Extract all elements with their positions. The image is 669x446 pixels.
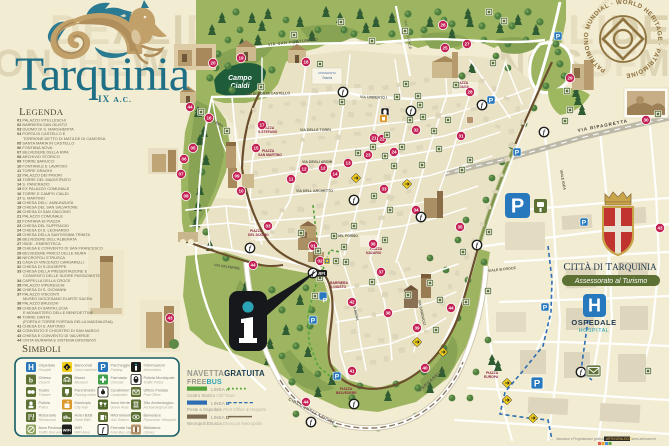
svg-text:Musei: Musei <box>75 375 86 380</box>
svg-text:Polizia Municipale: Polizia Municipale <box>144 375 175 380</box>
svg-text:WiFi: WiFi <box>63 428 71 433</box>
svg-text:44: 44 <box>448 306 454 311</box>
svg-text:20: 20 <box>210 61 216 66</box>
svg-text:37: 37 <box>378 270 384 275</box>
svg-text:Carabinieri: Carabinieri <box>111 393 128 397</box>
svg-text:P: P <box>100 363 106 372</box>
svg-text:05: 05 <box>190 146 196 151</box>
svg-text:S.GIUSTO: S.GIUSTO <box>330 285 347 289</box>
svg-text:35: 35 <box>457 225 463 230</box>
svg-text:Biblioteca: Biblioteca <box>144 425 162 430</box>
svg-text:34: 34 <box>413 208 419 213</box>
svg-text:Campo: Campo <box>228 75 252 82</box>
svg-text:Archaeological site: Archaeological site <box>143 406 173 410</box>
svg-text:OSPEDALE: OSPEDALE <box>571 318 616 327</box>
svg-text:16: 16 <box>206 116 212 121</box>
svg-text:H: H <box>28 363 34 372</box>
svg-text:Parking: Parking <box>111 368 123 372</box>
svg-text:40: 40 <box>422 366 428 371</box>
svg-text:15: 15 <box>253 146 259 151</box>
svg-text:SAN MARTINO: SAN MARTINO <box>258 153 282 157</box>
svg-text:Museum: Museum <box>75 381 89 385</box>
svg-text:HOSPITAL: HOSPITAL <box>579 328 610 334</box>
svg-text:12: 12 <box>301 167 307 172</box>
svg-text:Belvedere: Belvedere <box>144 413 162 418</box>
svg-text:H: H <box>588 296 601 316</box>
svg-text:42: 42 <box>349 300 355 305</box>
svg-text:Traffic Police: Traffic Police <box>144 381 164 385</box>
svg-text:31: 31 <box>458 134 464 139</box>
svg-text:City Hall: City Hall <box>75 406 88 410</box>
svg-text:Post Office: Post Office <box>144 393 161 397</box>
svg-text:33: 33 <box>381 187 387 192</box>
svg-text:Centro Storico Old Town: Centro Storico Old Town <box>187 393 235 398</box>
svg-text:Tuscia: Tuscia <box>322 76 332 80</box>
svg-text:NAZARIO: NAZARIO <box>366 251 382 255</box>
svg-text:CITTÀ DI TARQUINIA: CITTÀ DI TARQUINIA <box>563 261 657 273</box>
svg-text:44 CINTA MURARIA E SISTEMA DIF: 44 CINTA MURARIA E SISTEMA DIFENSIVO <box>17 337 96 342</box>
svg-text:Ufficio Postale: Ufficio Postale <box>144 388 169 393</box>
svg-text:24: 24 <box>391 150 397 155</box>
svg-text:LEGENDA: LEGENDA <box>19 106 64 118</box>
svg-text:Free-Bus stop: Free-Bus stop <box>111 431 133 435</box>
svg-text:EUROPA: EUROPA <box>484 375 499 379</box>
svg-text:Theatre: Theatre <box>39 393 51 397</box>
svg-text:43: 43 <box>167 316 173 321</box>
svg-text:14: 14 <box>332 172 338 177</box>
svg-text:03: 03 <box>265 224 271 229</box>
svg-text:18: 18 <box>303 60 309 65</box>
svg-text:P: P <box>335 373 340 380</box>
svg-text:IX A.C.: IX A.C. <box>98 94 132 104</box>
svg-text:44: 44 <box>303 400 309 405</box>
svg-text:43: 43 <box>657 226 663 231</box>
svg-text:10: 10 <box>238 189 244 194</box>
svg-text:P: P <box>582 219 587 226</box>
svg-text:41: 41 <box>349 369 355 374</box>
svg-text:Municipio: Municipio <box>75 400 91 405</box>
svg-text:VIA DELLE TORRI: VIA DELLE TORRI <box>300 128 331 132</box>
svg-text:08: 08 <box>183 194 189 199</box>
svg-text:Parcheggio: Parcheggio <box>111 363 131 368</box>
svg-text:12: 12 <box>320 166 326 171</box>
svg-text:BELVEDERE: BELVEDERE <box>336 391 357 395</box>
svg-text:30: 30 <box>643 118 649 123</box>
svg-text:27: 27 <box>464 42 470 47</box>
svg-text:VIA DI PORTA CASTELLO: VIA DI PORTA CASTELLO <box>246 91 290 96</box>
svg-text:Church: Church <box>39 381 50 385</box>
svg-text:Sito Archeologico: Sito Archeologico <box>144 400 174 405</box>
svg-text:FREEBUS: FREEBUS <box>187 379 222 386</box>
svg-text:38: 38 <box>385 311 391 316</box>
svg-text:36: 36 <box>370 242 376 247</box>
svg-text:Carabinieri: Carabinieri <box>111 388 130 393</box>
svg-text:Hotel B&B: Hotel B&B <box>75 413 93 418</box>
svg-text:WiFi: WiFi <box>75 425 83 430</box>
svg-text:VIA DELL ARCHETTO: VIA DELL ARCHETTO <box>296 189 333 193</box>
svg-text:Ospedale: Ospedale <box>39 363 56 368</box>
svg-text:UNIVERSITA: UNIVERSITA <box>318 71 336 75</box>
svg-text:Chiesa: Chiesa <box>39 375 52 380</box>
svg-text:11: 11 <box>289 177 294 182</box>
svg-text:39: 39 <box>414 326 420 331</box>
svg-text:Cash machine: Cash machine <box>75 368 97 372</box>
svg-text:Hospital: Hospital <box>39 368 52 372</box>
svg-text:SIMBOLI: SIMBOLI <box>22 343 61 355</box>
svg-text:Farmacia: Farmacia <box>111 375 128 380</box>
svg-text:Green Area: Green Area <box>111 406 129 410</box>
svg-text:S.STEFANO: S.STEFANO <box>258 130 278 134</box>
svg-text:44: 44 <box>250 263 256 268</box>
svg-text:P: P <box>543 304 548 311</box>
svg-text:Rifornimento: Rifornimento <box>111 413 133 418</box>
svg-text:Teatro: Teatro <box>39 388 50 393</box>
svg-text:Polizia: Polizia <box>39 400 51 405</box>
svg-text:P: P <box>311 317 316 324</box>
svg-text:09: 09 <box>234 174 240 179</box>
svg-text:13: 13 <box>345 161 351 166</box>
svg-text:19: 19 <box>238 56 244 61</box>
svg-text:Parchimetro: Parchimetro <box>75 388 96 393</box>
svg-text:b: b <box>29 376 33 385</box>
svg-text:P: P <box>515 149 520 156</box>
svg-text:28: 28 <box>467 90 473 95</box>
svg-text:P: P <box>511 196 524 218</box>
svg-text:P: P <box>534 379 541 390</box>
svg-text:25: 25 <box>442 46 448 51</box>
svg-text:Restaurant: Restaurant <box>39 418 57 422</box>
svg-text:Area Verde: Area Verde <box>111 400 130 405</box>
svg-text:P: P <box>323 297 328 304</box>
svg-text:Poste e Ospedale Post Office &: Poste e Ospedale Post Office & Hospital <box>187 407 267 412</box>
svg-text:02: 02 <box>317 259 323 264</box>
svg-text:Panoramic Viewpoint: Panoramic Viewpoint <box>144 418 178 422</box>
svg-text:NAVETTAGRATUITA: NAVETTAGRATUITA <box>187 369 265 378</box>
svg-text:www.artknow.net: www.artknow.net <box>632 437 656 441</box>
svg-text:Parking meter: Parking meter <box>75 393 98 397</box>
svg-text:ARTKNOWLEDGE: ARTKNOWLEDGE <box>606 437 633 441</box>
svg-text:07: 07 <box>178 172 184 177</box>
svg-text:DEL DUOMO: DEL DUOMO <box>248 233 269 237</box>
svg-text:Assessorato al Turismo: Assessorato al Turismo <box>574 278 648 285</box>
svg-text:Ideazione e Progettazione graf: Ideazione e Progettazione grafica <box>556 437 604 441</box>
svg-text:P: P <box>556 33 561 40</box>
svg-text:44: 44 <box>187 105 193 110</box>
svg-text:23: 23 <box>365 153 371 158</box>
svg-text:21: 21 <box>371 136 377 141</box>
svg-text:Informazioni: Informazioni <box>144 363 165 368</box>
svg-text:29: 29 <box>567 76 573 81</box>
svg-text:WiFi Area: WiFi Area <box>75 431 90 435</box>
svg-text:06: 06 <box>181 157 187 162</box>
svg-text:Traffic-free area: Traffic-free area <box>39 431 64 435</box>
svg-text:32: 32 <box>413 128 419 133</box>
svg-text:Chemist: Chemist <box>111 381 125 385</box>
svg-text:26: 26 <box>440 23 446 28</box>
svg-text:Necropoli Etrusca Etruscan Nec: Necropoli Etrusca Etruscan Necropolis <box>187 421 263 426</box>
svg-text:VIA DEGLI ARCHI: VIA DEGLI ARCHI <box>302 160 332 164</box>
svg-text:Ristorante: Ristorante <box>39 413 57 418</box>
svg-text:P: P <box>489 97 494 104</box>
svg-text:Library: Library <box>144 431 155 435</box>
svg-text:Gas Station: Gas Station <box>111 418 129 422</box>
svg-text:Police: Police <box>39 406 49 410</box>
svg-text:Area Pedonale: Area Pedonale <box>39 425 65 430</box>
svg-text:Hotel B&B: Hotel B&B <box>75 418 92 422</box>
svg-text:Information: Information <box>144 368 162 372</box>
svg-text:Bancomat: Bancomat <box>75 363 93 368</box>
svg-text:17: 17 <box>259 123 265 128</box>
